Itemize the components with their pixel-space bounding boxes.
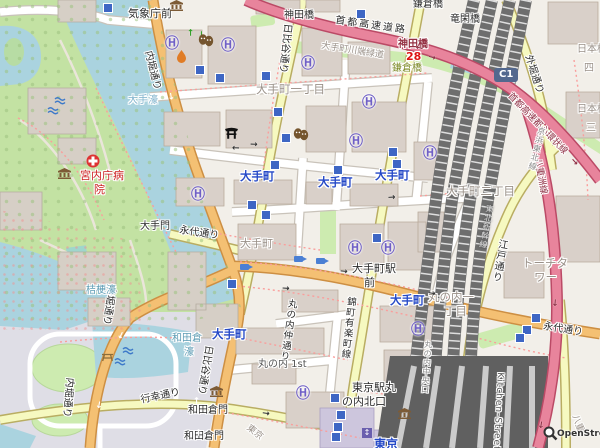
oneway-arrow: → xyxy=(261,410,270,420)
label-torch-tower-1: トーチタ xyxy=(522,258,568,270)
label-otebori: 大手濠 xyxy=(128,96,158,106)
label-otemachi-ekimae-1: 大手町駅 xyxy=(352,263,396,274)
subway-entrance-icon xyxy=(248,201,256,209)
label-wadakuramon: 和田倉門 xyxy=(188,406,228,416)
label-kamakurabashi-green: 鎌倉橋 xyxy=(392,64,422,74)
helipad-icon: Ⓗ xyxy=(381,242,395,256)
subway-entrance-icon xyxy=(196,66,204,74)
surveillance-camera-icon xyxy=(316,258,325,264)
label-marunouchi-1chome-2: 丁目 xyxy=(444,306,467,318)
route-28-shield: 28 xyxy=(406,51,421,62)
oneway-arrow: → xyxy=(165,92,175,101)
oneway-arrow: → xyxy=(388,194,396,204)
label-otemachi-2chome: 大手町二丁目 xyxy=(446,186,515,198)
helipad-icon: Ⓗ xyxy=(301,57,315,71)
label-otemachi-ekimae-2: 前 xyxy=(364,277,375,288)
subway-entrance-icon xyxy=(282,134,290,142)
subway-entrance-icon xyxy=(334,166,342,174)
label-wadakura-moat-1: 和田倉 xyxy=(172,334,202,344)
helipad-icon: Ⓗ xyxy=(348,242,362,256)
station-label-otemachi: 大手町 xyxy=(318,177,353,189)
subway-entrance-icon xyxy=(337,411,345,419)
station-label-otemachi: 大手町 xyxy=(390,295,425,307)
subway-entrance-icon xyxy=(523,326,531,334)
subway-entrance-icon xyxy=(334,423,342,431)
oneway-arrow: → xyxy=(232,142,240,151)
subway-entrance-icon xyxy=(393,160,401,168)
attribution-link[interactable]: OpenStreetMap xyxy=(557,429,600,439)
subway-entrance-icon xyxy=(262,72,270,80)
oneway-arrow: → xyxy=(250,141,258,150)
oneway-arrow: → xyxy=(282,285,290,295)
subway-entrance-icon xyxy=(357,10,365,18)
label-otemon: 大手門 xyxy=(140,222,170,232)
subway-entrance-icon xyxy=(262,211,270,219)
subway-entrance-icon xyxy=(332,433,340,441)
subway-entrance-icon xyxy=(104,4,112,12)
label-otemachi-1chome: 大手町一丁目 xyxy=(256,84,325,96)
label-uchibori-dori-low: 内堀通り xyxy=(61,377,74,418)
station-label-tokyo: 東京 xyxy=(374,438,398,448)
subway-entrance-icon xyxy=(228,280,236,288)
elevator-icon: ↕ xyxy=(362,428,372,438)
subway-entrance-icon xyxy=(271,161,279,169)
label-kandabashi-bridge: 神田橋 xyxy=(284,11,314,21)
label-kamakurabashi-top: 鎌倉橋 xyxy=(413,0,443,10)
helipad-icon: Ⓗ xyxy=(191,188,205,202)
label-otemachi-area: 大手町 xyxy=(240,238,273,249)
map-canvas[interactable]: 気象庁前 神田橋 首都高速道路 鎌倉橋 竜閑橋 日本橋 四 日本橋 三 内堀通り… xyxy=(0,0,600,448)
subway-entrance-icon xyxy=(331,394,339,402)
surveillance-camera-icon xyxy=(240,264,249,270)
helipad-icon: Ⓗ xyxy=(411,323,425,337)
label-marunouchi-1st: 丸の内 1st xyxy=(258,360,307,370)
label-tokyo-sta-north-1: 東京駅丸 xyxy=(352,382,396,393)
helipad-icon: Ⓗ xyxy=(423,147,437,161)
expressway-arrow: → xyxy=(427,53,437,64)
helipad-icon: Ⓗ xyxy=(362,96,376,110)
helipad-icon: Ⓗ xyxy=(165,37,179,51)
helipad-icon: Ⓗ xyxy=(221,39,235,53)
label-kunaicho-hospital-2: 院 xyxy=(94,184,105,195)
label-tokyo-sta-north-2: の内北口 xyxy=(342,396,386,407)
oneway-arrow: → xyxy=(427,289,436,299)
subway-entrance-icon xyxy=(389,148,397,156)
helipad-icon: Ⓗ xyxy=(296,387,310,401)
label-kikyobori: 桔梗濠 xyxy=(86,286,116,296)
label-nihonbashi-2: 日本橋 xyxy=(577,105,600,115)
subway-entrance-icon xyxy=(373,234,381,242)
pond-island xyxy=(4,38,24,66)
green-strip xyxy=(320,206,336,254)
label-kunaicho-hospital-1: 宮内庁病 xyxy=(80,170,124,181)
label-nihonbashi-4: 四 xyxy=(584,64,594,74)
oneway-arrow: → xyxy=(193,397,202,405)
label-kishocho-mae: 気象庁前 xyxy=(128,8,172,19)
station-label-otemachi: 大手町 xyxy=(375,170,410,182)
label-torch-tower-2: ワー xyxy=(534,272,557,284)
oneway-arrow: → xyxy=(155,66,165,75)
expressway-arrow: → xyxy=(549,298,559,306)
station-label-otemachi: 大手町 xyxy=(212,329,247,341)
label-nihonbashi-3: 三 xyxy=(586,124,596,134)
label-ryukanbashi: 竜閑橋 xyxy=(450,15,480,25)
subway-entrance-icon xyxy=(516,334,524,342)
oneway-arrow: → xyxy=(93,400,103,409)
helipad-icon: Ⓗ xyxy=(349,135,363,149)
c1-route-shield: C1 xyxy=(494,68,518,82)
oneway-arrow: → xyxy=(340,268,348,278)
subway-entrance-icon xyxy=(216,74,224,82)
subway-entrance-icon xyxy=(274,108,282,116)
surveillance-camera-icon xyxy=(294,256,303,262)
label-nihonbashi-1: 日本橋 xyxy=(577,45,600,55)
station-label-otemachi: 大手町 xyxy=(240,171,275,183)
label-wadakura-moat-2: 濠 xyxy=(184,348,194,358)
subway-entrance-icon xyxy=(532,314,540,322)
oneway-arrow: → xyxy=(195,429,204,437)
